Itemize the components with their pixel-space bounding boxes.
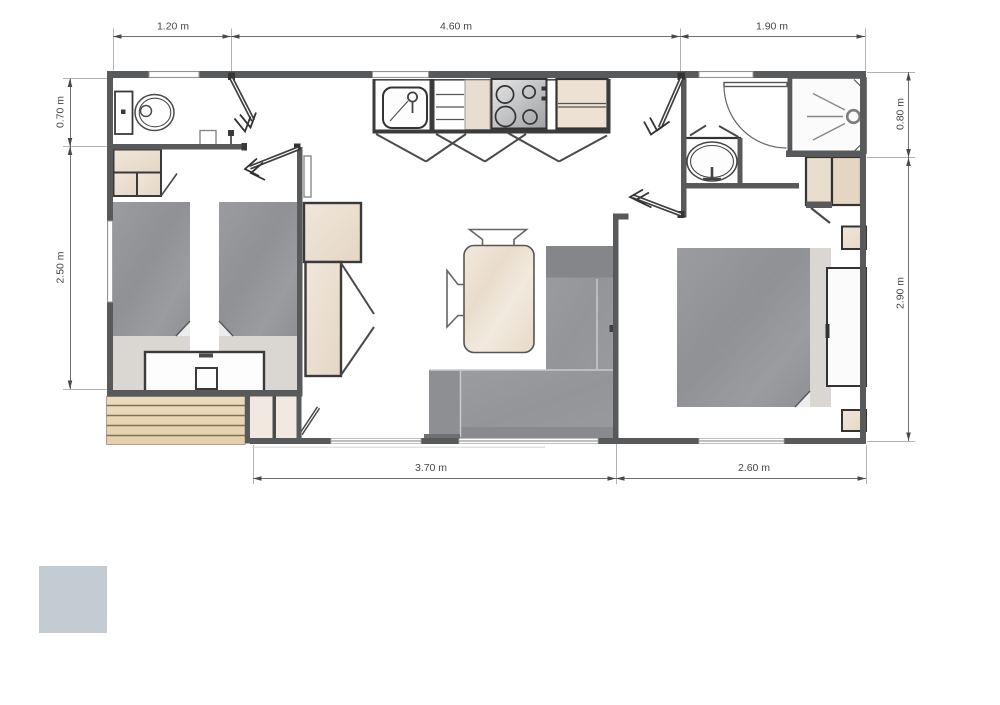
svg-text:0.80 m: 0.80 m xyxy=(895,98,907,130)
svg-text:4.60 m: 4.60 m xyxy=(440,21,472,33)
svg-text:1.90 m: 1.90 m xyxy=(756,21,788,33)
svg-text:2.50 m: 2.50 m xyxy=(55,251,67,283)
svg-text:3.70 m: 3.70 m xyxy=(415,462,447,474)
svg-text:2.60 m: 2.60 m xyxy=(738,462,770,474)
svg-text:1.20 m: 1.20 m xyxy=(157,21,189,33)
svg-text:0.70 m: 0.70 m xyxy=(55,96,67,128)
svg-text:2.90 m: 2.90 m xyxy=(895,277,907,309)
